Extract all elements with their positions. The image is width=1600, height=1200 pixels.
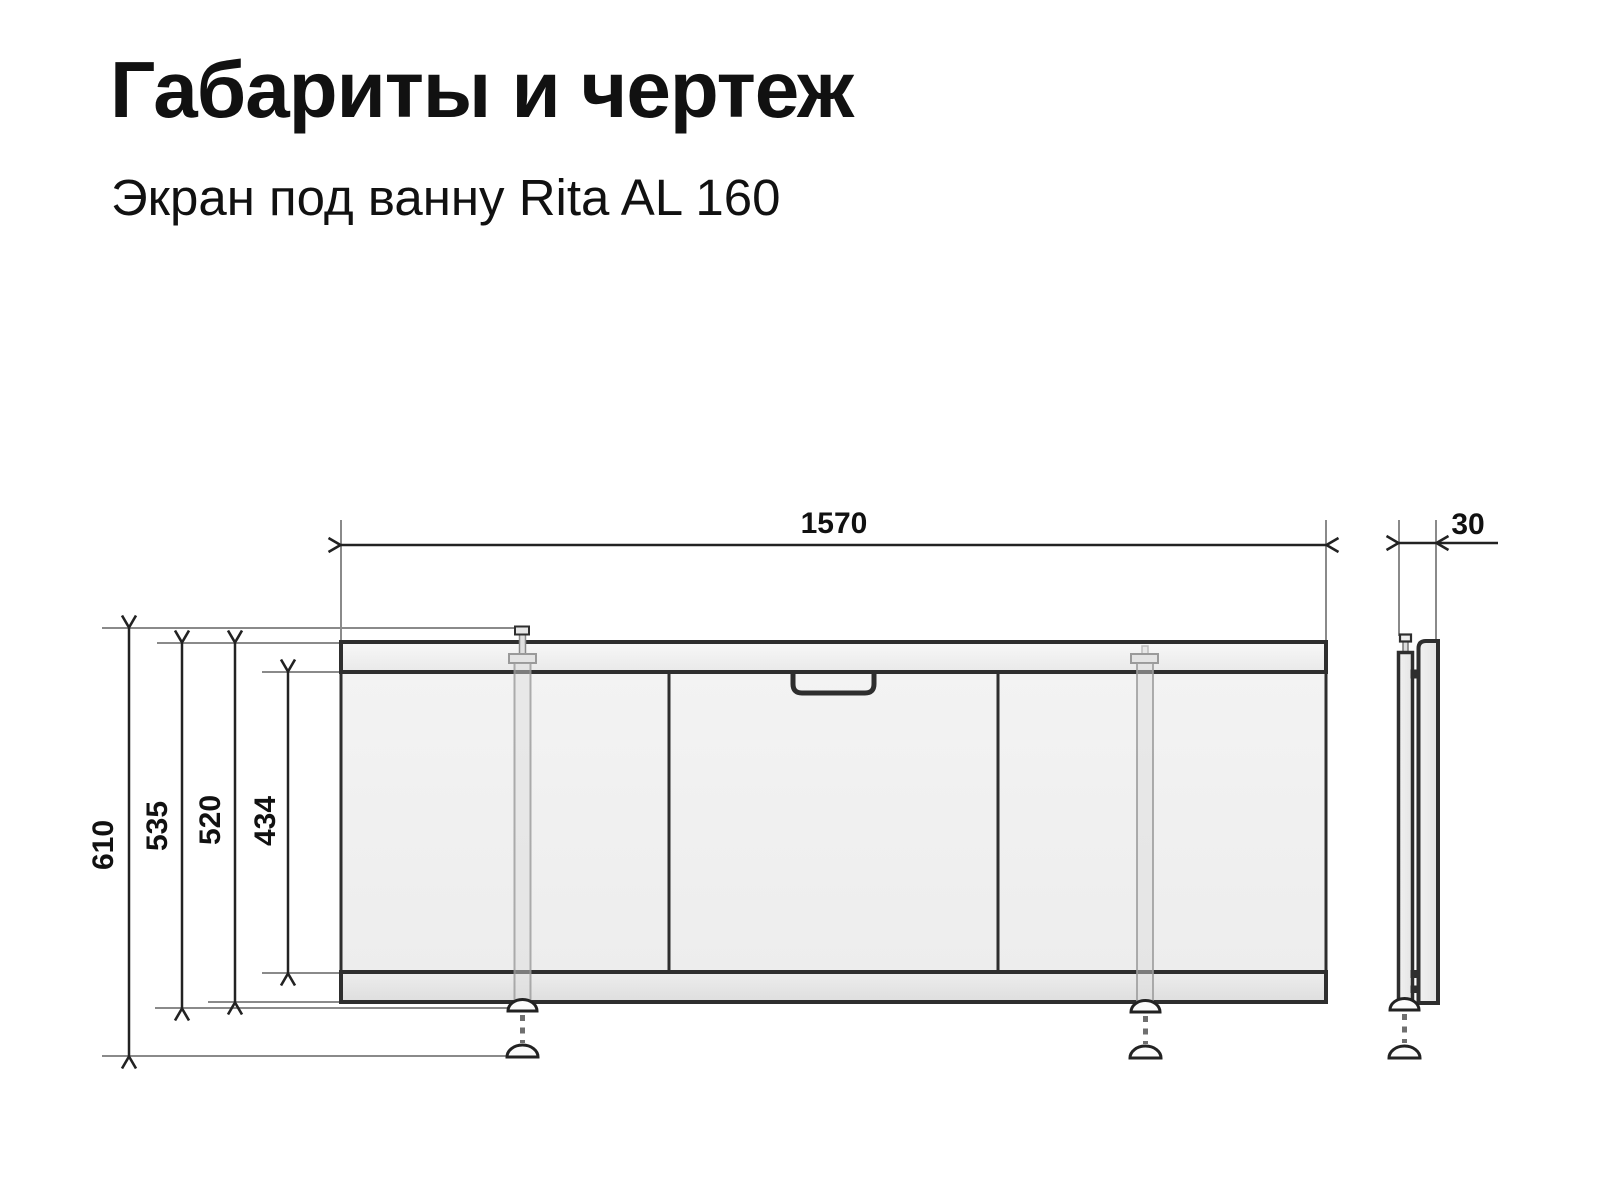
leg-plate xyxy=(1131,654,1158,663)
panel-edge-bar xyxy=(1399,653,1413,1001)
leg-shaft xyxy=(515,663,531,1001)
leg-plate xyxy=(509,654,536,663)
dim-value-434: 434 xyxy=(249,796,282,846)
foot-extended xyxy=(1389,1046,1420,1058)
foot-extended xyxy=(507,1045,538,1057)
bracket-top xyxy=(1411,670,1421,679)
dim-value-depth: 30 xyxy=(1451,508,1484,541)
technical-drawing: 1570 610 535 520 434 xyxy=(0,0,1600,1200)
bottom-rail xyxy=(341,972,1326,1002)
bracket-bottom-lower xyxy=(1411,986,1421,994)
foot-retracted xyxy=(1390,999,1419,1011)
screen-body xyxy=(341,642,1326,1002)
dim-inner-panel-height: 434 xyxy=(249,672,288,973)
foot-retracted xyxy=(508,1000,537,1011)
dim-overall-height: 610 xyxy=(87,628,129,1056)
dim-value-width: 1570 xyxy=(801,507,868,540)
dim-width: 1570 xyxy=(341,507,1326,545)
page-root: Габариты и чертеж Экран под ванну Rita A… xyxy=(0,0,1600,1200)
dim-panel-height: 520 xyxy=(194,643,235,1002)
dim-depth: 30 xyxy=(1399,508,1498,543)
top-rail xyxy=(341,642,1326,672)
dim-value-610: 610 xyxy=(87,820,120,870)
leg-shaft xyxy=(1137,663,1153,1001)
bracket-bottom-upper xyxy=(1411,970,1421,978)
side-profile xyxy=(1389,635,1438,1059)
dim-height-feet-retracted: 535 xyxy=(141,643,182,1008)
extension-lines xyxy=(1399,520,1436,640)
side-view: 30 xyxy=(1389,508,1498,1058)
dim-value-535: 535 xyxy=(141,801,174,851)
foot-extended xyxy=(1130,1046,1161,1058)
adjust-screw-head xyxy=(515,627,529,635)
foot-retracted xyxy=(1131,1001,1160,1013)
main-panel xyxy=(341,672,1326,972)
frame-profile-bar xyxy=(1419,641,1439,1003)
front-view: 1570 610 535 520 434 xyxy=(87,507,1326,1058)
adjust-screw-head xyxy=(1400,635,1411,642)
dim-value-520: 520 xyxy=(194,795,227,845)
